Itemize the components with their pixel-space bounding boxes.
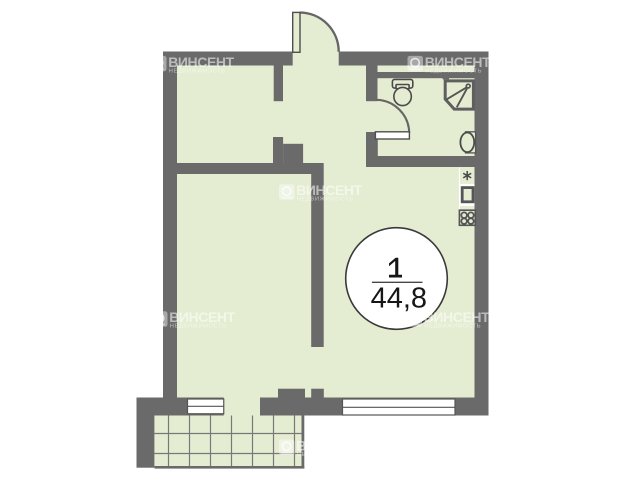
svg-text:44,8: 44,8 — [371, 283, 427, 315]
